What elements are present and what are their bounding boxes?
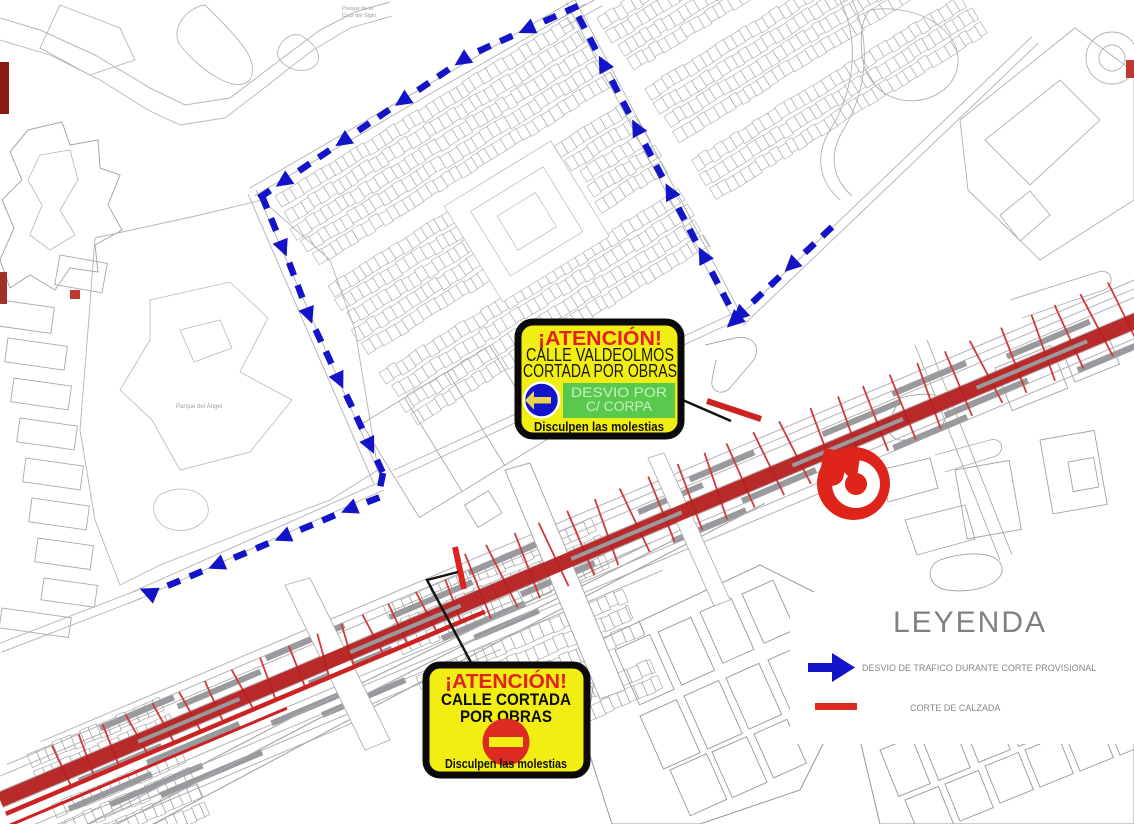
svg-text:DESVIO POR: DESVIO POR — [571, 385, 667, 400]
svg-text:Parque del Ángel: Parque del Ángel — [176, 403, 222, 410]
svg-text:Parque de la: Parque de la — [342, 6, 374, 12]
svg-text:Disculpen las molestias: Disculpen las molestias — [534, 419, 664, 434]
svg-text:DESVIO DE TRAFICO DURANTE CORT: DESVIO DE TRAFICO DURANTE CORTE PROVISIO… — [862, 663, 1096, 673]
svg-text:LEYENDA: LEYENDA — [893, 606, 1047, 639]
svg-text:C/ CORPA: C/ CORPA — [586, 399, 652, 414]
svg-text:Disculpen las molestias: Disculpen las molestias — [445, 756, 567, 771]
svg-text:Cruz del Siglo: Cruz del Siglo — [342, 13, 376, 19]
svg-text:CORTADA POR OBRAS: CORTADA POR OBRAS — [523, 361, 677, 381]
svg-text:CORTE DE CALZADA: CORTE DE CALZADA — [910, 703, 1000, 713]
